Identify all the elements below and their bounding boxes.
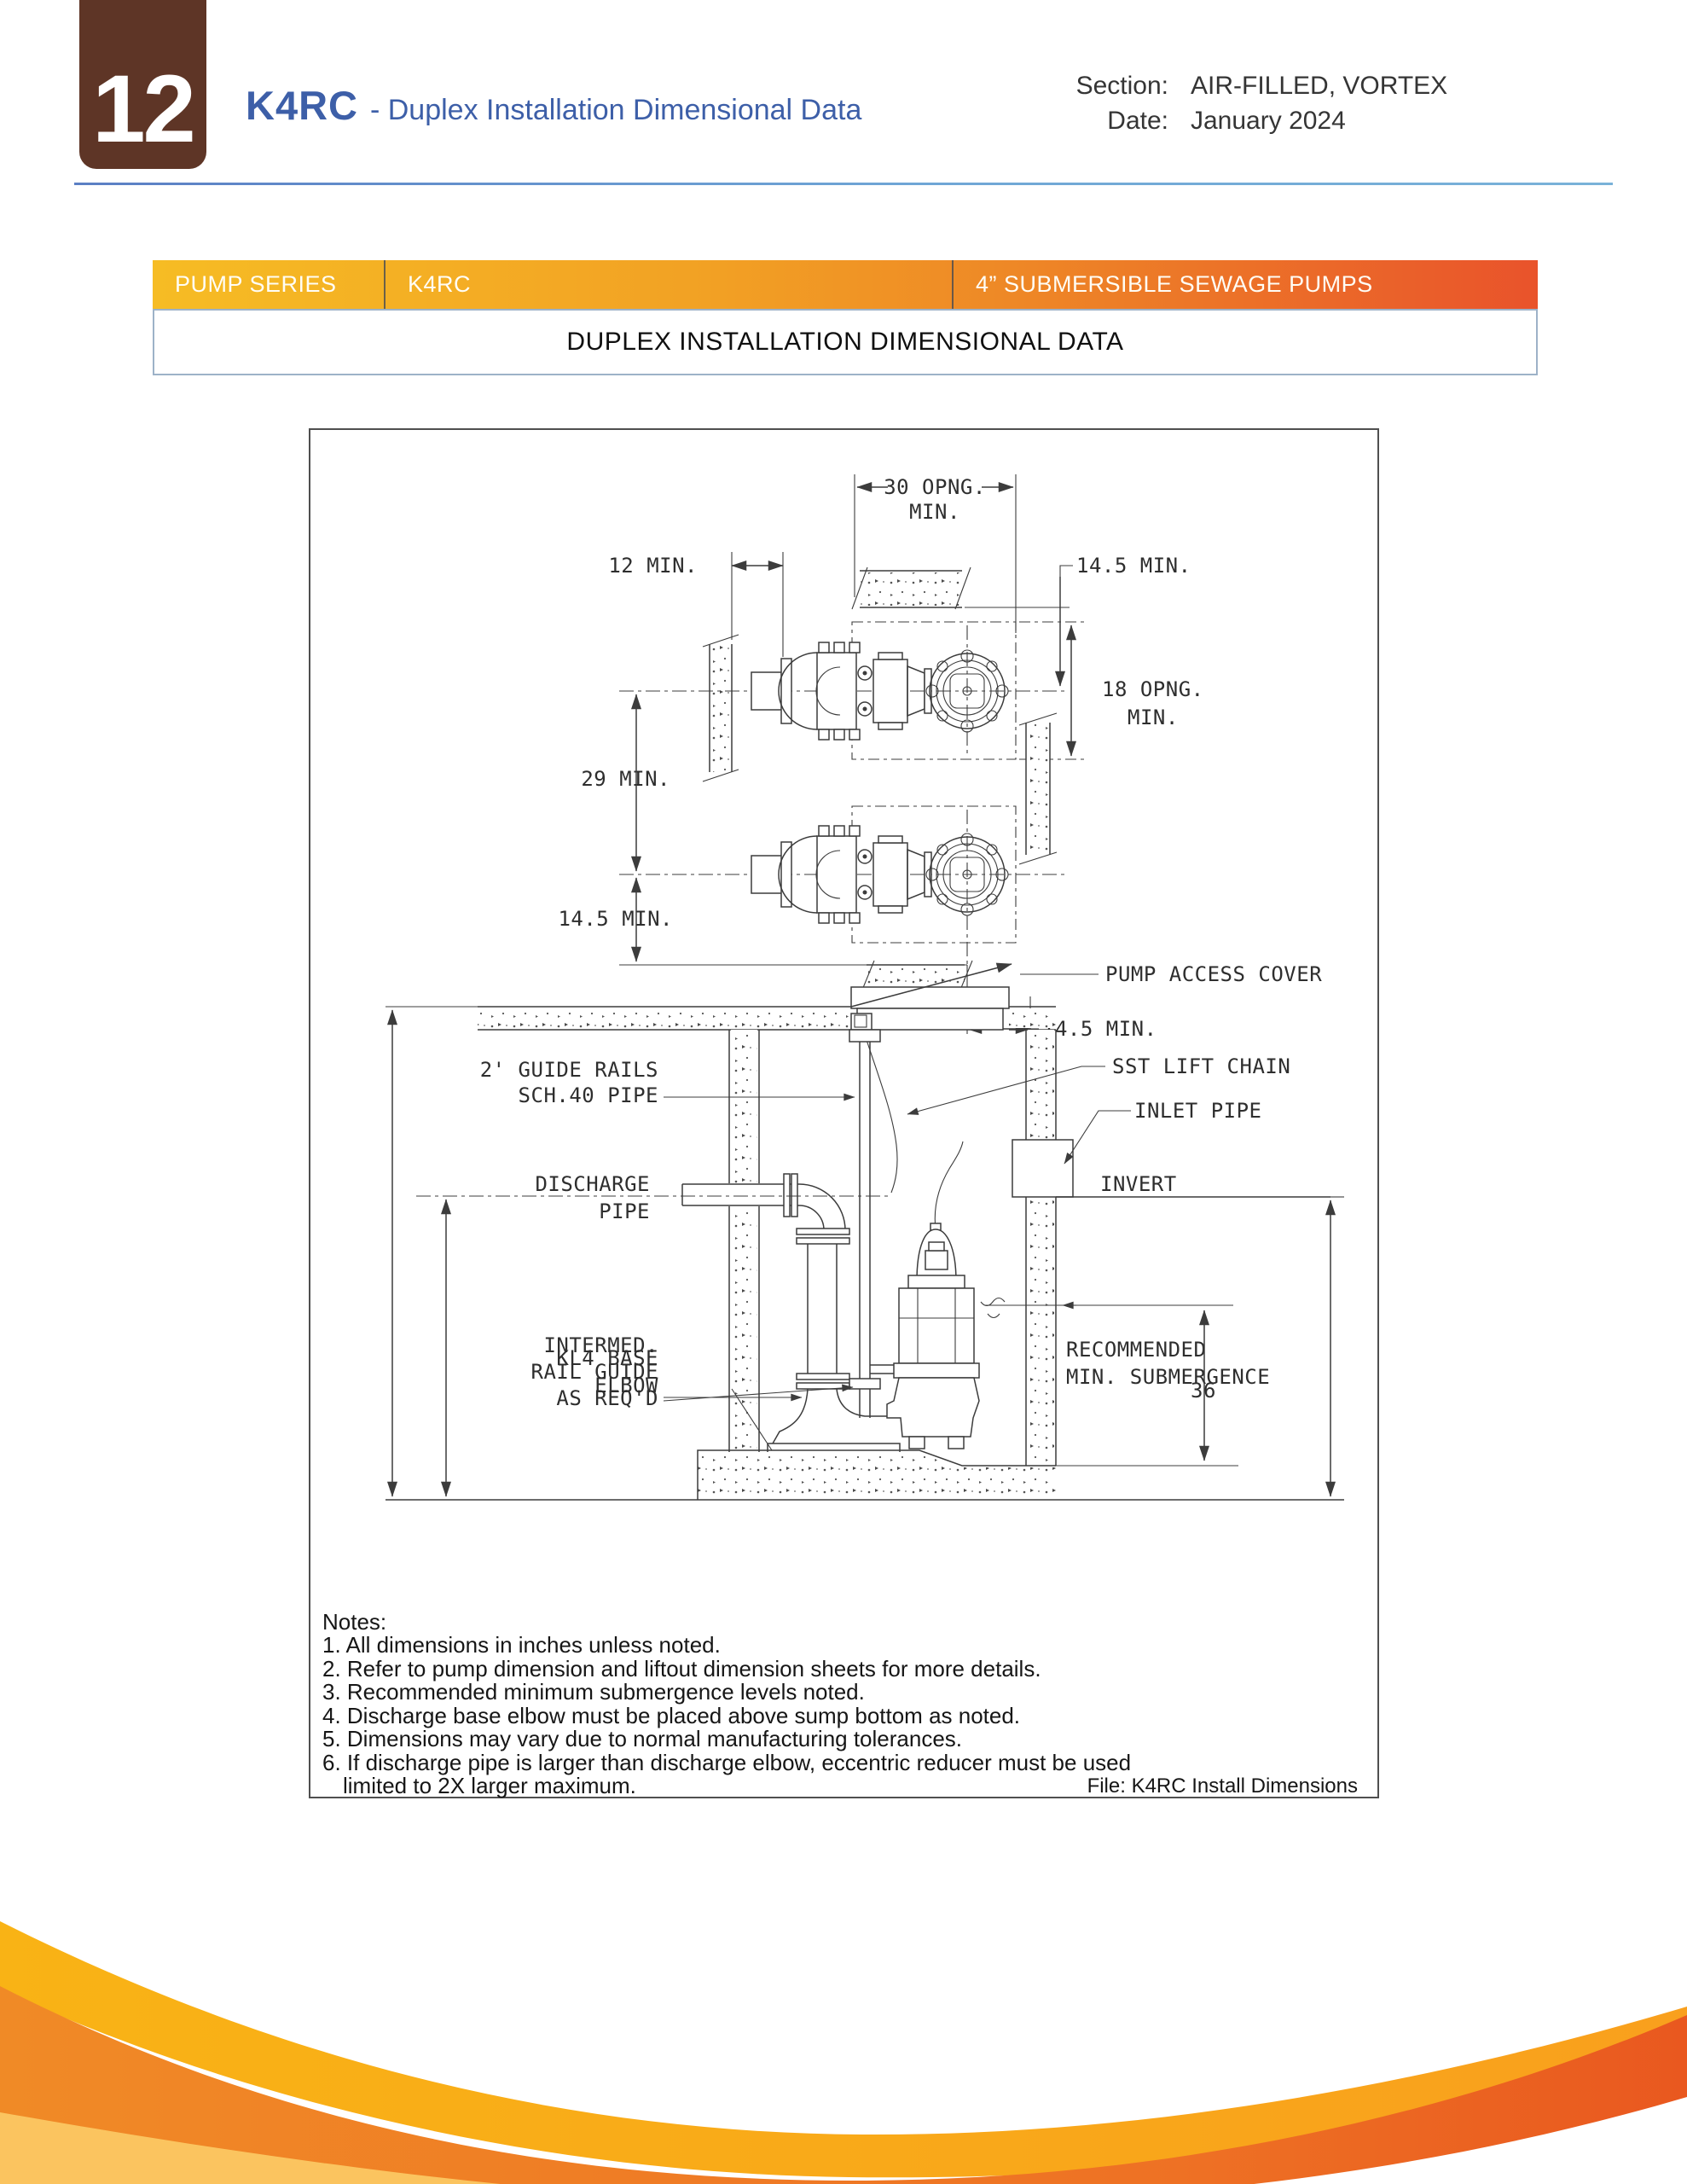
dim-pump-spacing: 29 MIN. xyxy=(581,767,670,791)
banner-cell-pump-series: PUMP SERIES xyxy=(153,260,384,309)
series-banner: PUMP SERIES K4RC 4” SUBMERSIBLE SEWAGE P… xyxy=(153,260,1538,375)
file-reference: File: K4RC Install Dimensions xyxy=(1087,1774,1358,1798)
dim-opening-width: 30 OPNG. xyxy=(884,475,986,499)
label-intermed-2: RAIL GUIDE xyxy=(531,1360,659,1384)
label-discharge-1: DISCHARGE xyxy=(535,1172,650,1196)
series-banner-header: PUMP SERIES K4RC 4” SUBMERSIBLE SEWAGE P… xyxy=(153,260,1538,309)
dim-opening-height-min: MIN. xyxy=(1128,706,1179,729)
note-item: 1. All dimensions in inches unless noted… xyxy=(322,1632,721,1658)
date-value: January 2024 xyxy=(1191,107,1447,136)
chapter-number-box: 12 xyxy=(79,0,206,169)
section-value: AIR-FILLED, VORTEX xyxy=(1191,72,1447,101)
label-inlet-pipe: INLET PIPE xyxy=(1134,1099,1262,1123)
installation-drawing: 30 OPNG. MIN. 12 MIN. 14.5 MIN. xyxy=(309,428,1379,1798)
note-item: 5. Dimensions may vary due to normal man… xyxy=(322,1726,962,1752)
banner-cell-model: K4RC xyxy=(384,260,952,309)
dim-opening-width-min: MIN. xyxy=(909,500,960,524)
dim-right-offset: 14.5 MIN. xyxy=(1042,1017,1157,1041)
label-intermed-1: INTERMED. xyxy=(543,1333,658,1357)
header-divider xyxy=(74,183,1613,185)
label-recommended-2: MIN. SUBMERGENCE xyxy=(1066,1365,1270,1389)
label-sst-lift-chain: SST LIFT CHAIN xyxy=(1112,1054,1290,1078)
section-label: Section: xyxy=(1058,72,1168,101)
label-intermed-3: AS REQ'D xyxy=(556,1386,658,1410)
plan-view: 30 OPNG. MIN. 12 MIN. 14.5 MIN. xyxy=(558,474,1203,1041)
label-recommended-1: RECOMMENDED xyxy=(1066,1338,1206,1362)
section-view: PUMP ACCESS COVER SST LIFT CHAIN 2' GUID… xyxy=(386,962,1344,1500)
label-guide-rails-2: SCH.40 PIPE xyxy=(519,1083,658,1107)
dim-top-offset: 14.5 MIN. xyxy=(1076,554,1191,578)
footer-wave-decoration xyxy=(0,1877,1687,2184)
title-model: K4RC xyxy=(246,82,358,129)
header-meta: Section: AIR-FILLED, VORTEX Date: Januar… xyxy=(1058,72,1447,136)
date-label: Date: xyxy=(1058,107,1168,136)
page-title: K4RC - Duplex Installation Dimensional D… xyxy=(246,82,861,129)
dim-bottom-offset: 14.5 MIN. xyxy=(558,907,673,931)
banner-subtitle: DUPLEX INSTALLATION DIMENSIONAL DATA xyxy=(153,309,1538,375)
dim-opening-height: 18 OPNG. xyxy=(1102,677,1204,701)
datasheet-page: 12 K4RC - Duplex Installation Dimensiona… xyxy=(0,0,1687,2184)
dim-submergence: 36 xyxy=(1191,1379,1216,1403)
label-guide-rails-1: 2' GUIDE RAILS xyxy=(480,1058,658,1082)
title-suffix: - Duplex Installation Dimensional Data xyxy=(370,94,861,127)
note-item: 3. Recommended minimum submergence level… xyxy=(322,1679,865,1705)
label-discharge-2: PIPE xyxy=(599,1199,650,1223)
dim-left-offset: 12 MIN. xyxy=(608,554,698,578)
page-number: 12 xyxy=(92,61,194,169)
banner-cell-pump-type: 4” SUBMERSIBLE SEWAGE PUMPS xyxy=(952,260,1538,309)
label-invert: INVERT xyxy=(1100,1172,1177,1196)
note-continuation: limited to 2X larger maximum. xyxy=(343,1773,636,1799)
label-pump-access-cover: PUMP ACCESS COVER xyxy=(1105,962,1322,986)
